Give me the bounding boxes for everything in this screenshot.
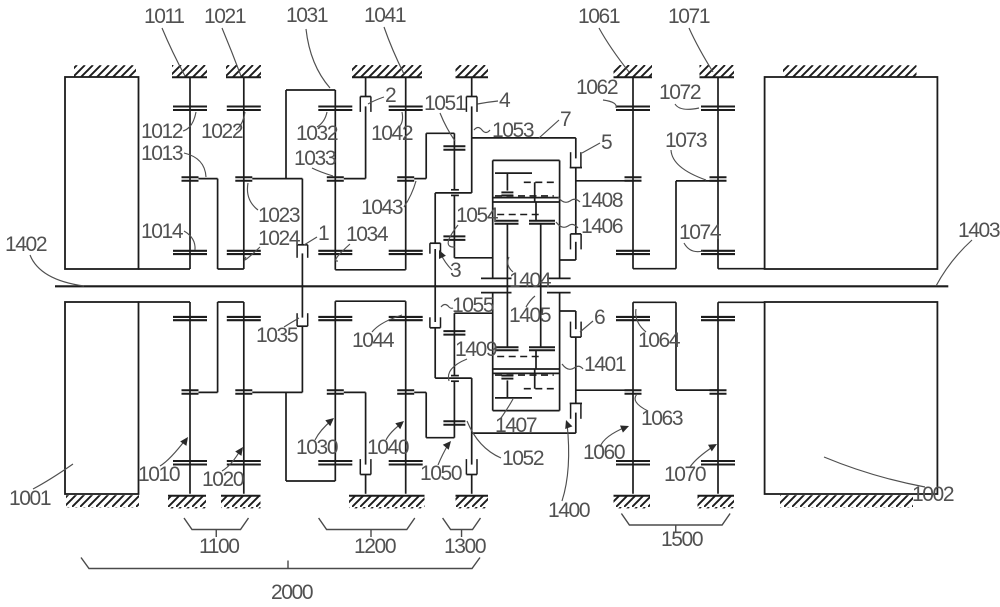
svg-text:1051: 1051 <box>424 92 466 115</box>
svg-text:1021: 1021 <box>204 5 246 28</box>
svg-text:1402: 1402 <box>5 233 47 256</box>
svg-text:1010: 1010 <box>138 463 180 486</box>
svg-text:2: 2 <box>385 84 396 107</box>
svg-text:1053: 1053 <box>492 119 534 142</box>
svg-text:1040: 1040 <box>367 436 409 459</box>
svg-text:1074: 1074 <box>679 221 722 244</box>
svg-text:1401: 1401 <box>584 353 626 376</box>
svg-text:1050: 1050 <box>420 462 462 485</box>
svg-text:1001: 1001 <box>9 487 51 510</box>
svg-text:1013: 1013 <box>141 142 183 165</box>
svg-text:1054: 1054 <box>456 204 499 227</box>
svg-text:1073: 1073 <box>665 129 707 152</box>
svg-text:5: 5 <box>601 131 612 154</box>
svg-text:1409: 1409 <box>455 338 497 361</box>
svg-text:1061: 1061 <box>578 5 620 28</box>
svg-text:6: 6 <box>594 306 605 329</box>
svg-text:1044: 1044 <box>352 329 395 352</box>
svg-text:1063: 1063 <box>641 407 683 430</box>
svg-text:1002: 1002 <box>912 483 954 506</box>
svg-text:7: 7 <box>560 108 571 131</box>
svg-text:1024: 1024 <box>258 227 301 250</box>
svg-text:1055: 1055 <box>452 294 494 317</box>
svg-text:1030: 1030 <box>296 436 338 459</box>
svg-text:1500: 1500 <box>661 528 703 551</box>
svg-text:1035: 1035 <box>256 324 298 347</box>
svg-text:1020: 1020 <box>202 468 244 491</box>
svg-text:1064: 1064 <box>638 329 681 352</box>
svg-text:2000: 2000 <box>271 581 313 604</box>
svg-text:1011: 1011 <box>144 5 184 28</box>
svg-text:1060: 1060 <box>583 441 625 464</box>
svg-text:1: 1 <box>318 222 329 245</box>
svg-text:1043: 1043 <box>361 196 403 219</box>
svg-text:1407: 1407 <box>495 414 537 437</box>
svg-text:1012: 1012 <box>141 120 183 143</box>
svg-text:1070: 1070 <box>664 463 706 486</box>
svg-text:1071: 1071 <box>668 5 710 28</box>
svg-text:1072: 1072 <box>659 81 701 104</box>
svg-text:1300: 1300 <box>444 535 486 558</box>
svg-text:1062: 1062 <box>576 76 618 99</box>
svg-text:1404: 1404 <box>509 269 552 292</box>
svg-text:1403: 1403 <box>958 219 1000 242</box>
svg-text:1405: 1405 <box>509 304 551 327</box>
svg-text:1034: 1034 <box>346 223 389 246</box>
svg-text:3: 3 <box>450 259 461 282</box>
svg-text:4: 4 <box>499 89 511 112</box>
svg-text:1400: 1400 <box>548 499 590 522</box>
svg-text:1052: 1052 <box>502 447 544 470</box>
svg-text:1014: 1014 <box>141 220 184 243</box>
svg-text:1406: 1406 <box>581 215 623 238</box>
svg-text:1022: 1022 <box>201 120 243 143</box>
svg-text:1031: 1031 <box>286 4 328 27</box>
svg-text:1408: 1408 <box>581 189 623 212</box>
svg-text:1032: 1032 <box>296 122 338 145</box>
svg-text:1100: 1100 <box>199 535 239 558</box>
svg-text:1042: 1042 <box>371 122 413 145</box>
svg-text:1023: 1023 <box>258 204 300 227</box>
svg-text:1200: 1200 <box>354 535 396 558</box>
svg-text:1041: 1041 <box>364 4 406 27</box>
svg-text:1033: 1033 <box>294 147 336 170</box>
